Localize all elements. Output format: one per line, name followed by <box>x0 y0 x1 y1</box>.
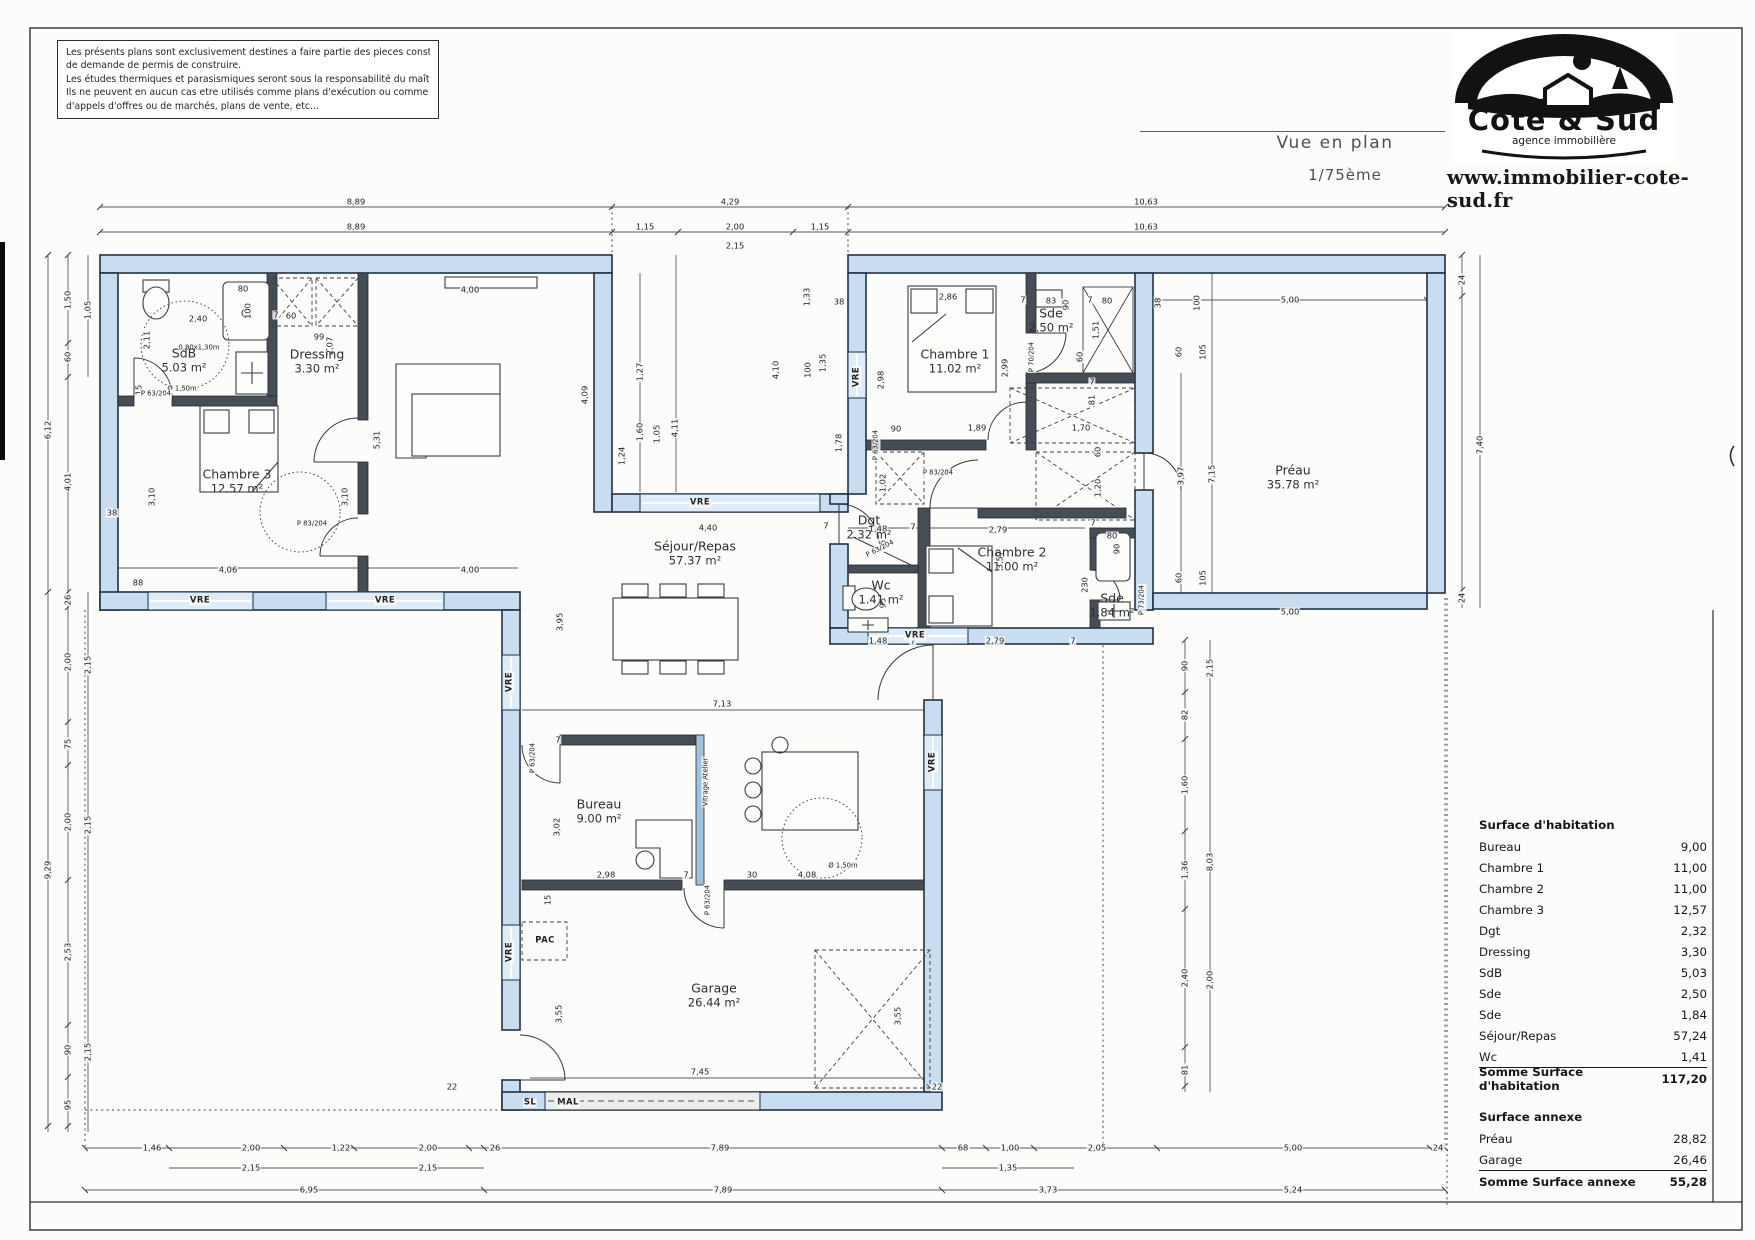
room-label: Garage26.44 m² <box>688 981 740 1010</box>
surface-habitation-total-label: Somme Surface d'habitation <box>1479 1065 1661 1093</box>
dim-label: 7,15 <box>1208 464 1217 484</box>
surface-habitation-total-value: 117,20 <box>1661 1072 1707 1086</box>
room-label: Chambre 211.00 m² <box>978 545 1047 574</box>
dim-label: 1,20 <box>1094 478 1103 498</box>
dim-label: 4,00 <box>460 566 480 575</box>
dim-label: 60 <box>285 312 298 321</box>
dim-label: 7 <box>909 523 916 532</box>
dim-label: 24 <box>1458 274 1467 287</box>
view-title: Vue en plan <box>1225 133 1445 153</box>
dim-label: 230 <box>1081 576 1090 594</box>
surface-annexe-total-value: 55,28 <box>1670 1175 1707 1189</box>
logo-name: Côte & Sud <box>1452 103 1676 137</box>
dim-label: 2,00 <box>418 1144 438 1153</box>
dim-label: 7 <box>1019 296 1026 305</box>
dim-label: 5,31 <box>373 430 382 450</box>
dim-label: 2,15 <box>241 1164 261 1173</box>
dim-label: 10,63 <box>1133 198 1159 207</box>
dim-label: 100 <box>804 361 813 379</box>
dim-label: 7 <box>272 311 279 320</box>
dim-label: 10,63 <box>1133 223 1159 232</box>
titleblock-rule <box>1140 131 1445 132</box>
dim-label: 2,40 <box>188 315 208 324</box>
dim-label: 100 <box>1193 294 1202 312</box>
surface-row: Chambre 312,57 <box>1479 899 1707 920</box>
room-label: Chambre 312.57 m² <box>203 467 272 496</box>
agency-logo: Côte & Sud agence immobilière <box>1452 31 1676 165</box>
surface-row: Wc1,41 <box>1479 1046 1707 1067</box>
dim-label: 1,27 <box>636 362 645 382</box>
dim-label: 1,78 <box>835 433 844 453</box>
dim-label: P 63/204 <box>704 884 713 916</box>
disclaimer-line: de demande de permis de construire. <box>66 59 430 72</box>
dim-label: 2,05 <box>1087 1144 1107 1153</box>
dim-label: 90 <box>64 1044 73 1057</box>
dim-label: P 63/204 <box>140 390 172 399</box>
dim-label: 1,35 <box>998 1164 1018 1173</box>
dim-label: 1,35 <box>819 353 828 373</box>
dim-label: 3,55 <box>894 1006 903 1026</box>
annotation-label: VRE <box>689 499 711 508</box>
dim-label: 7 <box>822 522 829 531</box>
surface-habitation-title: Surface d'habitation <box>1479 818 1707 832</box>
dim-label: 2,15 <box>418 1164 438 1173</box>
dim-label: 7 <box>1088 378 1095 387</box>
plan-sheet: Les présents plans sont exclusivement de… <box>0 0 1755 1240</box>
dim-label: P 83/204 <box>296 520 328 529</box>
dim-label: 1,22 <box>331 1144 351 1153</box>
dim-label: 2,00 <box>64 812 73 832</box>
dim-label: 5,00 <box>1280 608 1300 617</box>
dim-label: 1,15 <box>810 223 830 232</box>
logo-tagline: agence immobilière <box>1452 135 1676 147</box>
dim-label: 2,40 <box>1181 968 1190 988</box>
dim-label: 2,86 <box>938 293 958 302</box>
dim-label: 4,08 <box>797 871 817 880</box>
surface-row: Chambre 211,00 <box>1479 878 1707 899</box>
annotation-label: VRE <box>506 671 515 693</box>
dim-label: 38 <box>1154 297 1163 310</box>
dim-label: 3,73 <box>1038 1186 1058 1195</box>
dim-label: 4,11 <box>671 418 680 438</box>
dim-label: 2,99 <box>1001 358 1010 378</box>
dim-label: 7,89 <box>710 1144 730 1153</box>
dim-label: 38 <box>106 509 119 518</box>
dim-label: 2,00 <box>64 652 73 672</box>
dim-label: 26 <box>64 594 73 607</box>
surface-row: Bureau9,00 <box>1479 836 1707 857</box>
dim-label: 2,98 <box>877 370 886 390</box>
annotation-label: VRE <box>853 366 862 388</box>
room-label: Sde1.84 m² <box>1089 591 1134 620</box>
dim-label: 90 <box>1181 660 1190 673</box>
dim-label: Ø 1,50m <box>827 862 858 871</box>
dim-label: 4,00 <box>460 286 480 295</box>
disclaimer-line: Ils ne peuvent en aucun cas etre utilisé… <box>66 86 430 99</box>
dim-label: 2,15 <box>84 815 93 835</box>
dim-label: 80 <box>237 285 250 294</box>
dim-label: P 63/204 <box>529 742 538 774</box>
room-label: Préau35.78 m² <box>1267 463 1319 492</box>
annotation-label: VRE <box>929 751 938 773</box>
dim-label: 1,51 <box>1092 320 1101 340</box>
dim-label: 24 <box>1432 1144 1445 1153</box>
dim-label: 7,89 <box>713 1186 733 1195</box>
dim-label: 1,60 <box>636 422 645 442</box>
dim-label: 75 <box>64 738 73 751</box>
dim-label: 105 <box>1199 343 1208 361</box>
dim-label: 2,79 <box>988 526 1008 535</box>
dim-label: 8,03 <box>1206 852 1215 872</box>
surface-row: Préau28,82 <box>1479 1128 1707 1149</box>
dim-label: 80 <box>1101 297 1114 306</box>
dim-label: 3,02 <box>553 817 562 837</box>
dim-label: 2,15 <box>1206 658 1215 678</box>
dim-label: 7,13 <box>712 700 732 709</box>
dim-label: 7,45 <box>690 1068 710 1077</box>
surface-row: Sde1,84 <box>1479 1004 1707 1025</box>
surface-annexe-title: Surface annexe <box>1479 1110 1707 1124</box>
annotation-label: VRE <box>374 597 396 606</box>
dim-label: 2,00 <box>1206 970 1215 990</box>
surface-habitation-total: Somme Surface d'habitation 117,20 <box>1479 1067 1707 1090</box>
dim-label: 1,05 <box>653 424 662 444</box>
agency-website: www.immobilier-cote-sud.fr <box>1447 166 1747 212</box>
exterior-walls <box>100 255 1445 1110</box>
dim-label: 1,48 <box>868 637 888 646</box>
dim-label: 30 <box>746 871 759 880</box>
dim-label: 4,06 <box>218 566 238 575</box>
surface-row: Dressing3,30 <box>1479 941 1707 962</box>
dim-label: 2,15 <box>84 655 93 675</box>
dim-label: 3,95 <box>556 612 565 632</box>
dim-label: 2,15 <box>725 242 745 251</box>
dim-label: 1,36 <box>1181 860 1190 880</box>
dim-label: 26 <box>489 1144 502 1153</box>
annotation-label: VRE <box>189 597 211 606</box>
dim-label: 3,55 <box>555 1004 564 1024</box>
dim-label: 1,00 <box>1000 1144 1020 1153</box>
annotation-label: MAL <box>556 1099 580 1108</box>
dim-label: 60 <box>1175 572 1184 585</box>
dim-label: 7 <box>682 871 689 880</box>
dim-label: 2,53 <box>64 942 73 962</box>
dim-label: 3,10 <box>148 487 157 507</box>
drawing-scale: 1/75ème <box>1265 166 1425 184</box>
dim-label: 8,89 <box>346 198 366 207</box>
dim-label: P 83/204 <box>922 469 954 478</box>
room-label: SdB5.03 m² <box>161 346 206 375</box>
dim-label: Vitrage Atelier <box>702 757 711 808</box>
dim-label: 1,70 <box>1071 424 1091 433</box>
room-label: Bureau9.00 m² <box>576 797 621 826</box>
dim-label: 90 <box>890 425 903 434</box>
disclaimer-line: Les études thermiques et parasismiques s… <box>66 73 430 86</box>
room-label: Sde2.50 m² <box>1028 306 1073 335</box>
surface-annexe-total-label: Somme Surface annexe <box>1479 1175 1636 1189</box>
dim-label: 2,79 <box>985 637 1005 646</box>
dim-label: 15 <box>544 894 553 907</box>
annotation-label: PAC <box>534 937 555 946</box>
dim-label: 95 <box>64 1099 73 1112</box>
dim-label: 1,02 <box>879 473 888 493</box>
room-label: Dressing3.30 m² <box>290 347 345 376</box>
dim-label: 24 <box>1458 592 1467 605</box>
dim-label: 68 <box>957 1144 970 1153</box>
dim-label: 4,01 <box>64 472 73 492</box>
surface-row: Dgt2,32 <box>1479 920 1707 941</box>
dim-label: 2,15 <box>84 1042 93 1062</box>
annotation-label: SL <box>523 1099 537 1108</box>
annotation-label: VRE <box>506 941 515 963</box>
dim-label: 22 <box>446 1083 459 1092</box>
dim-label: 1,60 <box>1181 775 1190 795</box>
surface-table: Surface d'habitation Bureau9,00Chambre 1… <box>1479 818 1707 1193</box>
dim-label: 81 <box>1088 394 1097 407</box>
dim-label: 4,10 <box>772 360 781 380</box>
dim-label: 7 <box>554 736 561 745</box>
dim-label: P 73/204 <box>1138 584 1147 616</box>
dim-label: 80 <box>1106 532 1119 541</box>
dim-label: 99 <box>313 333 326 342</box>
room-label: Séjour/Repas57.37 m² <box>654 539 736 568</box>
dim-label: 1,89 <box>967 424 987 433</box>
dim-label: 60 <box>1094 446 1103 459</box>
dim-label: 100 <box>244 302 253 320</box>
disclaimer-line: Les présents plans sont exclusivement de… <box>66 46 430 59</box>
surface-row: Chambre 111,00 <box>1479 857 1707 878</box>
dim-label: 5,00 <box>1283 1144 1303 1153</box>
dim-label: 81 <box>1181 1064 1190 1077</box>
dim-label: 6,12 <box>44 420 53 440</box>
surface-row: SdB5,03 <box>1479 962 1707 983</box>
dim-label: 2,98 <box>596 871 616 880</box>
surface-habitation-rows: Bureau9,00Chambre 111,00Chambre 211,00Ch… <box>1479 836 1707 1067</box>
dim-label: 4,40 <box>698 524 718 533</box>
dim-label: 7 <box>1089 519 1096 528</box>
dim-label: 1,50 <box>64 290 73 310</box>
dim-label: P 63/204 <box>872 429 881 461</box>
surface-annexe-total: Somme Surface annexe 55,28 <box>1479 1170 1707 1193</box>
dim-label: 60 <box>1076 351 1085 364</box>
dim-label: 6,95 <box>299 1186 319 1195</box>
dim-label: 5,00 <box>1280 296 1300 305</box>
dim-label: 1,24 <box>618 446 627 466</box>
disclaimer-box: Les présents plans sont exclusivement de… <box>57 40 439 119</box>
dim-label: P 70/204 <box>1028 341 1037 373</box>
room-label: Dgt2.32 m² <box>846 513 891 542</box>
surface-row: Sde2,50 <box>1479 983 1707 1004</box>
dim-label: 7 <box>1069 637 1076 646</box>
disclaimer-line: d'appels d'offres ou de marchés, plans d… <box>66 100 430 113</box>
dim-label: 90 <box>1113 543 1122 556</box>
dim-label: 5,24 <box>1283 1186 1303 1195</box>
dim-label: 1,15 <box>635 223 655 232</box>
dim-label: 60 <box>1175 346 1184 359</box>
dim-label: 83 <box>1045 297 1058 306</box>
dim-label: 7,40 <box>1476 435 1485 455</box>
dim-label: 60 <box>64 351 73 364</box>
dim-label: 2,00 <box>241 1144 261 1153</box>
dim-label: 1,33 <box>803 287 812 307</box>
dim-label: 4,09 <box>581 385 590 405</box>
annotation-label: VRE <box>904 632 926 641</box>
dim-label: 2,00 <box>725 223 745 232</box>
room-label: Wc1.41 m² <box>858 578 903 607</box>
dim-label: 105 <box>1199 569 1208 587</box>
dim-label: 3,97 <box>1177 466 1186 486</box>
doors <box>134 333 1181 1080</box>
surface-row: Garage26,46 <box>1479 1149 1707 1170</box>
dim-label: 8,89 <box>346 223 366 232</box>
dim-label: 1,05 <box>84 300 93 320</box>
surface-row: Séjour/Repas57,24 <box>1479 1025 1707 1046</box>
dim-label: 2,11 <box>143 330 152 350</box>
dim-label: 9,29 <box>44 860 53 880</box>
dim-label: 1,46 <box>142 1144 162 1153</box>
dim-label: 88 <box>132 579 145 588</box>
dim-label: 4,29 <box>720 198 740 207</box>
dim-label: 82 <box>1181 709 1190 722</box>
surface-annexe-rows: Préau28,82Garage26,46 <box>1479 1128 1707 1170</box>
dim-label: 22 <box>931 1083 944 1092</box>
dim-label: 3,10 <box>341 487 350 507</box>
dim-label: 7 <box>1086 296 1093 305</box>
dim-label: 38 <box>833 298 846 307</box>
room-label: Chambre 111.02 m² <box>921 347 990 376</box>
